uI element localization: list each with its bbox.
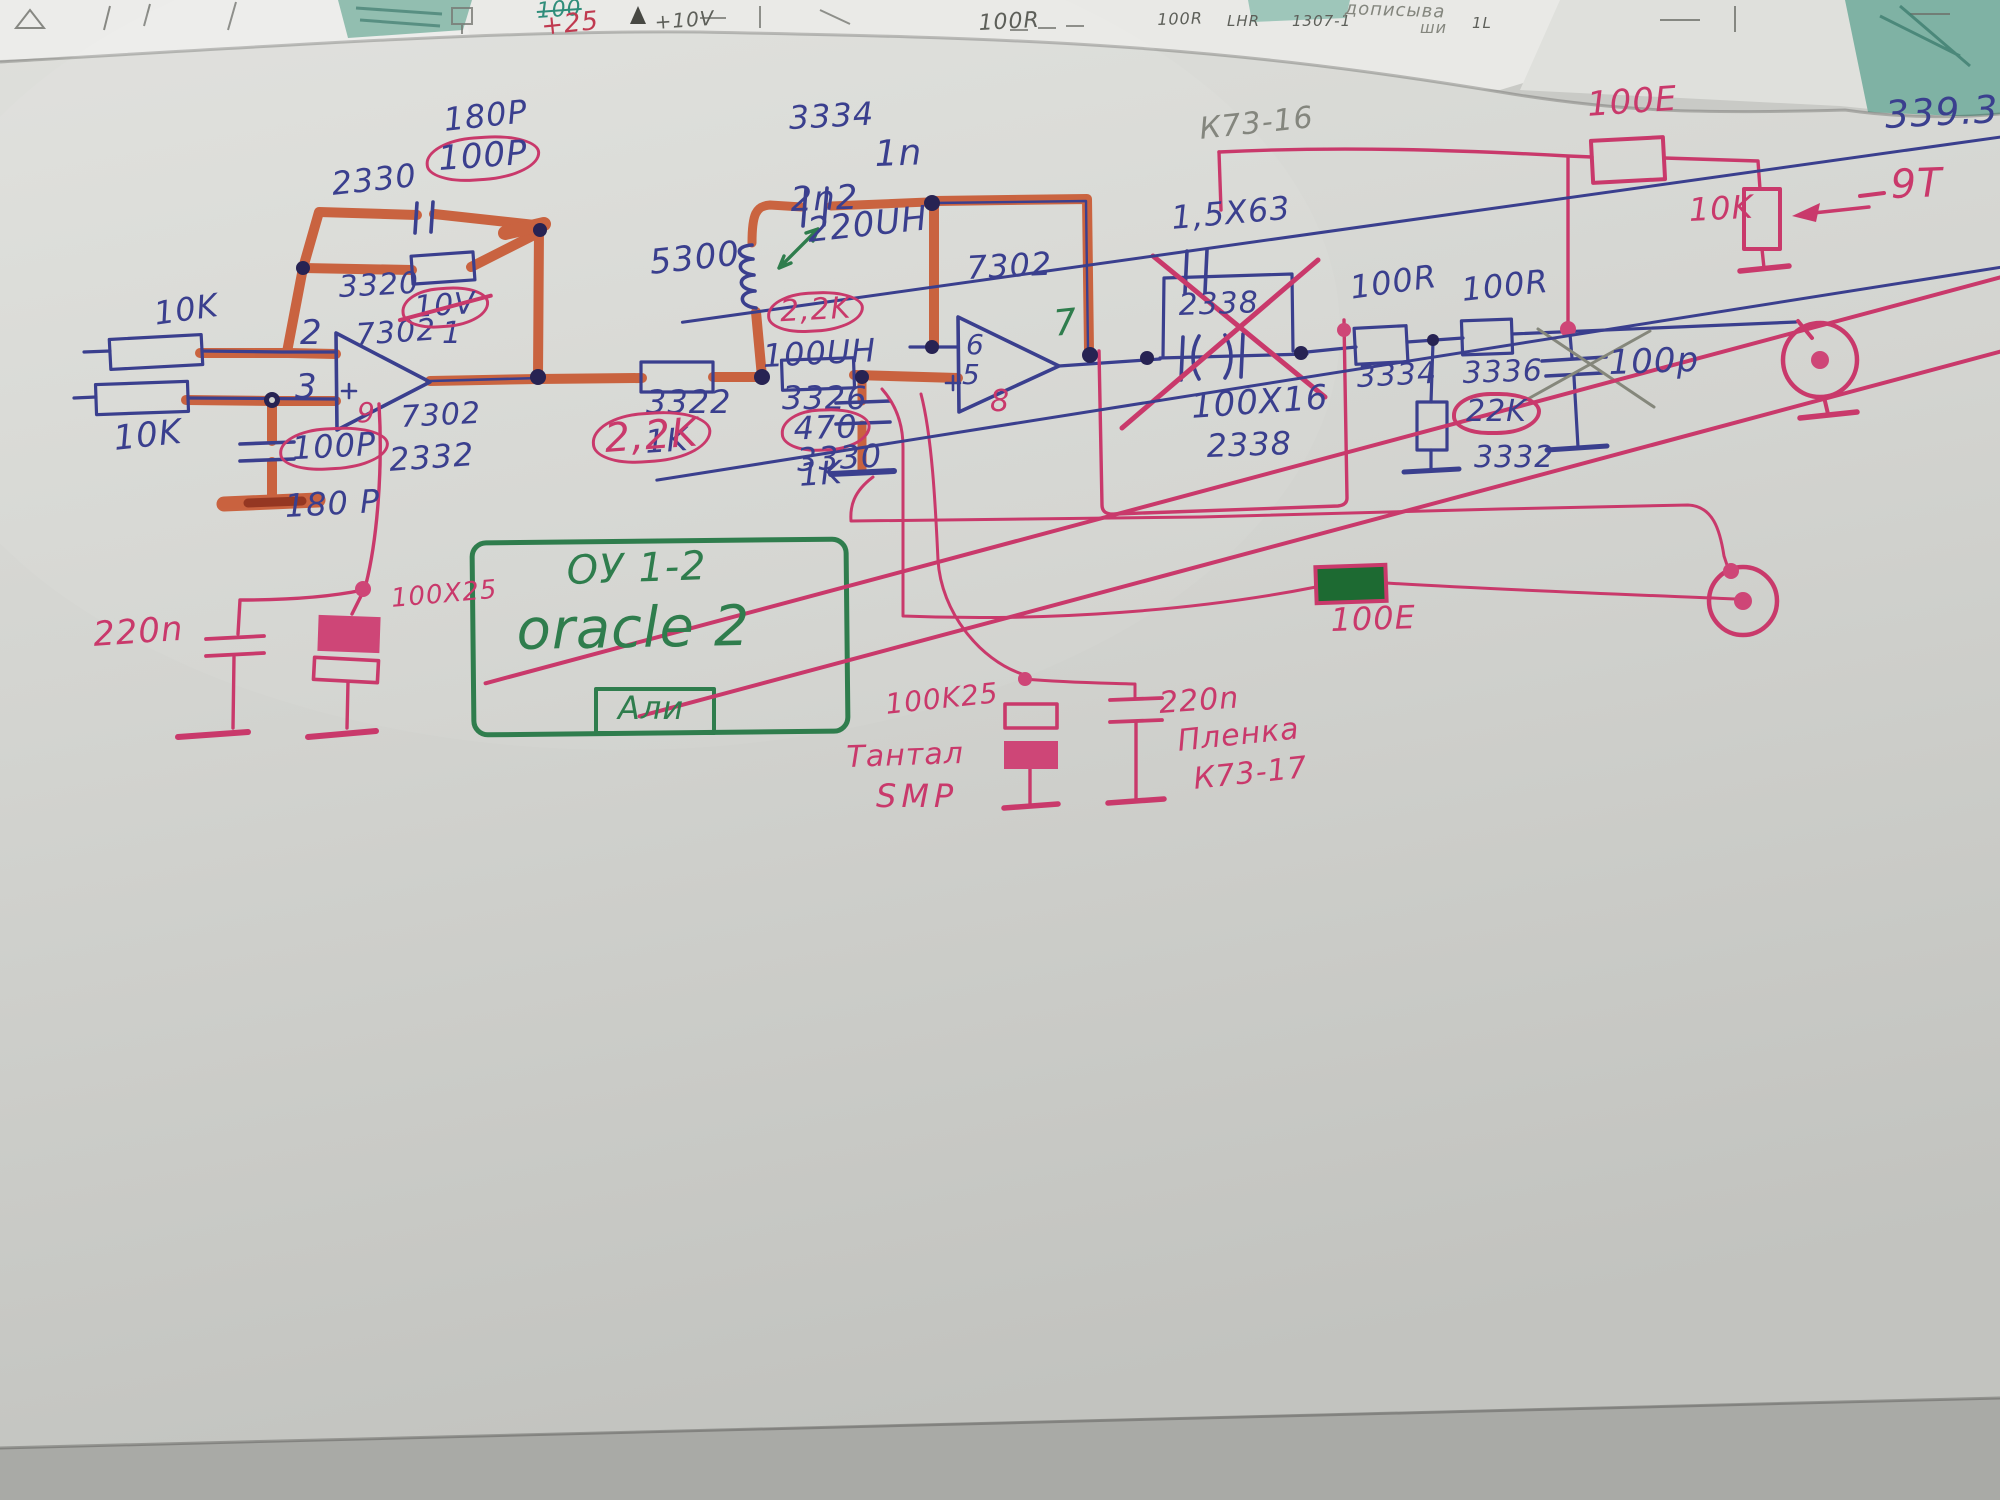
green-filled-resistor xyxy=(1315,565,1386,603)
bg-fragment: 1307-1 xyxy=(1292,14,1351,30)
label-pin-5: 5 xyxy=(962,360,981,389)
label-pin-8: 8 xyxy=(990,386,1010,418)
label-pin-3: 3 xyxy=(295,370,318,406)
label-in-cap-ref: 2332 xyxy=(388,438,476,477)
bg-fragment: 100R xyxy=(1157,10,1203,28)
label-pin-7: 7 xyxy=(1052,304,1080,344)
label-cap-ref: 3334 xyxy=(788,98,875,136)
label-opamp2-type: 7302 xyxy=(966,248,1053,286)
label-bias-cap2-val: 220n xyxy=(1158,682,1240,719)
label-gnd-res-ref: 3332 xyxy=(1474,442,1554,474)
photo-of-hand-drawn-schematic: 100 +25 +10V 100R 100R LHR 1307-1 1L доп… xyxy=(0,0,2000,1500)
label-cap-new: 1n xyxy=(874,134,923,173)
label-film-ref: 2338 xyxy=(1178,287,1259,321)
electrolytic-cap-body xyxy=(317,615,380,653)
label-out-r2-val: 100R xyxy=(1460,265,1550,308)
label-pin-2: 2 xyxy=(300,316,323,352)
label-tr-pot-val: 10K xyxy=(1688,191,1754,228)
label-elec-ref: 2338 xyxy=(1206,427,1293,464)
label-pin-6: 6 xyxy=(966,330,985,359)
title-box-line3: Али xyxy=(618,692,684,726)
label-tr-res-val: 100E xyxy=(1586,82,1679,124)
label-fb-cap-new: 180P xyxy=(442,95,529,137)
label-out-cap-val: 100p xyxy=(1608,343,1700,382)
bg-fragment: +25 xyxy=(540,8,600,41)
label-in-cap-new: 180 P xyxy=(284,485,381,524)
bg-fragment: 100R xyxy=(978,9,1040,35)
label-bias-cap1-type: Тантал xyxy=(846,738,964,774)
label-bias-cap-film: 220n xyxy=(92,612,185,654)
bg-fragment: ши xyxy=(1420,20,1447,37)
bg-fragment: 1L xyxy=(1472,16,1492,32)
label-shunt-cap-ref: 3330 xyxy=(796,440,883,478)
label-bias-cap1-mount: SMP xyxy=(876,780,958,814)
label-tr-note-blue: 339.3 xyxy=(1884,90,2000,136)
label-opamp1-type-sub: 7302 xyxy=(400,398,482,434)
label-fb-cap-ref: 2330 xyxy=(330,159,418,201)
label-tr-note-pink: 9Т xyxy=(1890,162,1943,206)
connector2-center-pin xyxy=(1734,592,1752,610)
label-coil-ref: 5300 xyxy=(648,237,742,282)
label-gnd-res-circled: 22K xyxy=(1452,392,1541,435)
title-box-line1: ОУ 1-2 xyxy=(566,545,707,592)
label-r-in-top: 10K xyxy=(152,289,221,331)
label-mid-res-val: 100E xyxy=(1330,601,1416,638)
bg-fragment: +10V xyxy=(654,8,715,33)
label-pin-9: 9 xyxy=(357,398,376,427)
tantalum-cap-body xyxy=(1004,741,1058,769)
bg-fragment: LHR xyxy=(1227,14,1260,30)
label-r-in-bottom: 10K xyxy=(112,415,184,458)
label-out-r2-ref: 3336 xyxy=(1462,355,1543,389)
label-out-r1-ref: 3334 xyxy=(1356,358,1438,394)
title-box-line2: oracle 2 xyxy=(516,598,751,661)
